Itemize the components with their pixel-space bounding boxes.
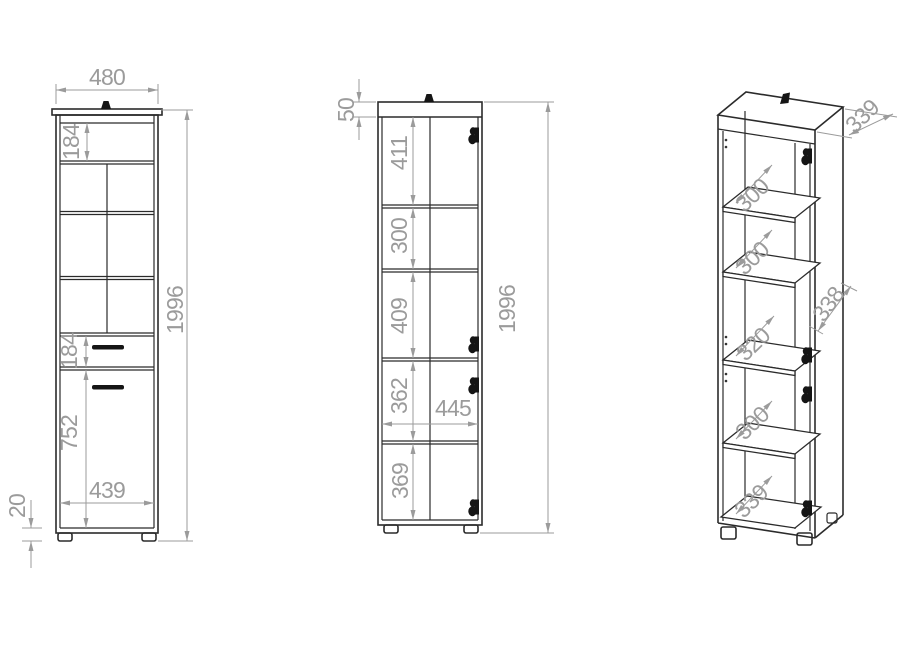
dim-interior-width: 445 bbox=[435, 395, 471, 421]
dim-door-height: 752 bbox=[56, 415, 82, 451]
front-view: 480 184 1996 184 752 439 20 bbox=[4, 64, 193, 568]
dim-overall-height: 1996 bbox=[162, 286, 188, 334]
dim-section-2: 300 bbox=[386, 218, 412, 254]
isometric-view: 339 300 300 338 320 300 339 bbox=[718, 92, 897, 545]
isometric-dimensions: 339 300 300 338 320 300 339 bbox=[729, 94, 897, 523]
dim-top-depth: 339 bbox=[840, 94, 884, 138]
top-panel bbox=[718, 92, 843, 130]
hinge-icon bbox=[468, 377, 479, 394]
dim-top-compartment: 184 bbox=[58, 123, 84, 160]
hinge-icon bbox=[801, 148, 812, 165]
foot-left bbox=[384, 525, 398, 533]
hinge-icon bbox=[468, 336, 479, 353]
cabinet-dimension-drawing: 480 184 1996 184 752 439 20 bbox=[0, 0, 900, 650]
dim-overall-height: 1996 bbox=[494, 285, 520, 333]
dim-top-panel: 50 bbox=[333, 98, 359, 122]
hinge-icon bbox=[801, 500, 812, 517]
hinge-icon bbox=[468, 499, 479, 516]
section-view: 50 411 300 409 362 369 445 1996 bbox=[333, 79, 554, 533]
dim-interior-width: 439 bbox=[89, 477, 125, 503]
dim-drawer-height: 184 bbox=[56, 332, 82, 369]
top-knob-icon bbox=[424, 94, 434, 102]
hinge-icons bbox=[468, 127, 479, 516]
dim-plinth-height: 20 bbox=[4, 494, 30, 518]
dim-section-5: 369 bbox=[387, 463, 413, 499]
dim-overall-width: 480 bbox=[89, 64, 125, 90]
shelf-pin-holes bbox=[725, 139, 728, 383]
section-dimensions: 50 411 300 409 362 369 445 1996 bbox=[333, 79, 554, 533]
drawer-handle bbox=[92, 345, 124, 350]
top-knob-icon bbox=[101, 101, 111, 109]
foot-right bbox=[464, 525, 478, 533]
foot-left bbox=[58, 533, 72, 541]
front-dimensions: 480 184 1996 184 752 439 20 bbox=[4, 64, 193, 568]
dim-section-3: 409 bbox=[386, 298, 412, 334]
carcass-lines bbox=[60, 115, 154, 528]
technical-drawing-canvas: 480 184 1996 184 752 439 20 bbox=[0, 0, 900, 650]
foot-right bbox=[142, 533, 156, 541]
crown-board bbox=[52, 109, 162, 115]
hinge-icon bbox=[801, 386, 812, 403]
dim-section-1: 411 bbox=[386, 136, 412, 170]
hinge-icon bbox=[468, 127, 479, 144]
door-handle bbox=[92, 385, 124, 390]
foot-left bbox=[721, 527, 736, 539]
dim-section-4: 362 bbox=[386, 378, 412, 414]
